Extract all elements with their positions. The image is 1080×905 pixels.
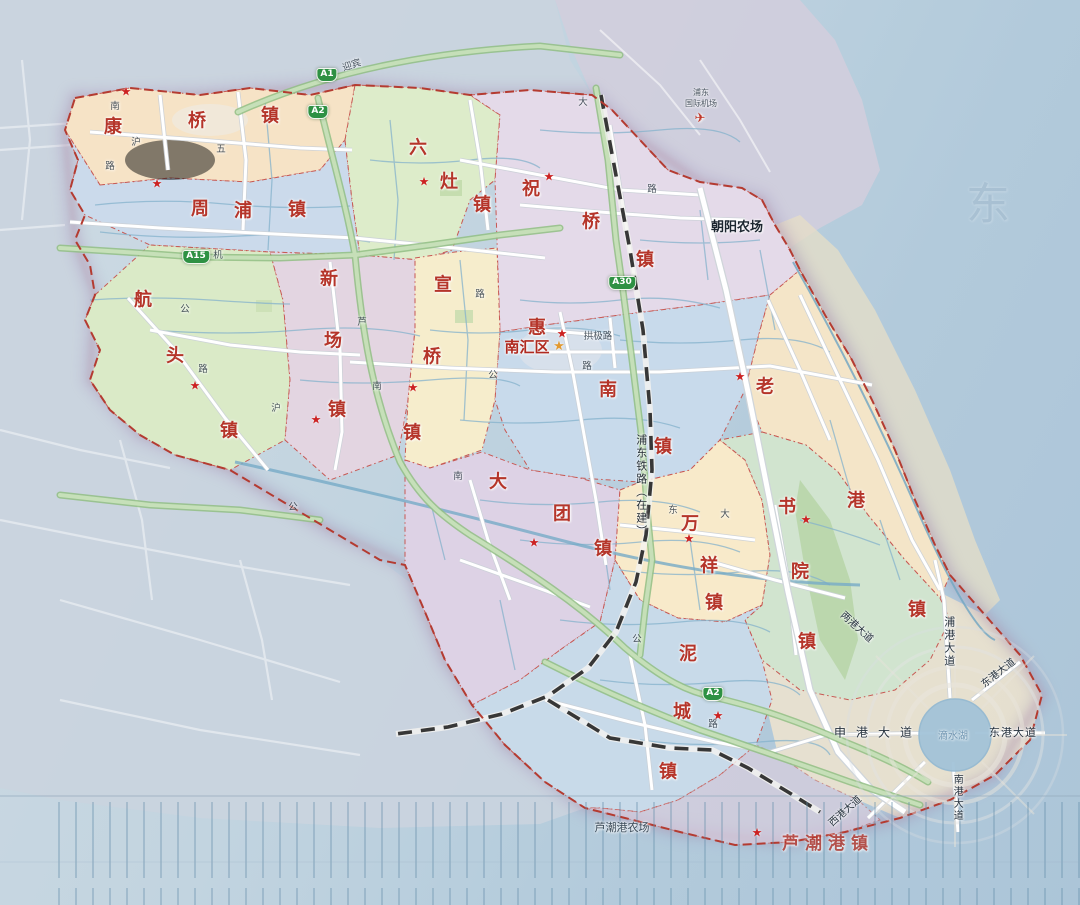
road-name-fragment: 沪	[131, 138, 141, 148]
pudong-airport-label: 国际机场	[685, 100, 717, 108]
town-seat-star: ★	[752, 827, 763, 840]
town-label-datuan: 镇	[594, 541, 612, 560]
town-label-hangtou: 航	[134, 292, 152, 311]
town-label-hangtou: 镇	[220, 423, 238, 442]
town-label-xinchang: 镇	[328, 402, 346, 421]
road-name-fragment: 路	[582, 362, 592, 372]
road-name-fragment: 南	[453, 472, 463, 482]
road-name-fragment: 公	[288, 503, 298, 513]
road-name-fragment: 公	[180, 305, 190, 315]
town-label-datuan: 大	[489, 474, 507, 493]
highway-shield-a2: A2	[307, 105, 328, 119]
road-name-fragment: 路	[647, 185, 657, 195]
lake-label: 滴水湖	[938, 732, 968, 743]
town-label-wanxiang: 祥	[700, 558, 718, 577]
district-capital-star: ★	[553, 340, 565, 354]
town-label-xuanqiao: 镇	[403, 425, 421, 444]
avenue-label: 西港大道	[828, 795, 865, 830]
town-label-datuan: 团	[553, 506, 571, 525]
town-label-huinan: 惠	[528, 320, 546, 339]
town-seat-star: ★	[190, 380, 201, 393]
town-seat-star: ★	[419, 176, 430, 189]
sea-ghost-label: 东	[966, 182, 1010, 228]
road-name-fragment: 南	[372, 382, 382, 392]
town-seat-star: ★	[544, 171, 555, 184]
road-name-fragment: 路	[105, 162, 115, 172]
town-label-zhuqiao: 镇	[636, 252, 654, 271]
town-label-xuanqiao: 桥	[423, 349, 441, 368]
town-label-liuzao: 六	[409, 140, 427, 159]
road-name-fragment: 南	[110, 102, 120, 112]
town-seat-star: ★	[735, 371, 746, 384]
town-label-wanxiang: 镇	[705, 595, 723, 614]
town-label-zhoupu: 浦	[234, 203, 252, 222]
labels-layer: 康桥镇周浦镇航头镇新场镇六灶镇宣桥镇祝桥镇惠南镇大团镇老港镇万祥镇书院镇泥城镇芦…	[0, 0, 1080, 905]
highway-shield-a2: A2	[702, 687, 723, 701]
town-label-nicheng: 镇	[659, 764, 677, 783]
avenue-label: 申港大道	[834, 727, 922, 740]
town-label-zhoupu: 周	[191, 201, 209, 220]
town-label-xinchang: 新	[320, 271, 338, 290]
road-name-fragment: 大	[720, 510, 730, 520]
town-label-shuyuan: 镇	[798, 634, 816, 653]
town-label-laogang: 镇	[908, 602, 926, 621]
town-label-huinan: 镇	[654, 439, 672, 458]
district-label: 南汇区	[504, 340, 549, 356]
road-name-fragment: 机	[213, 251, 223, 261]
highway-shield-a30: A30	[608, 276, 636, 290]
avenue-label: 南港大道	[951, 774, 962, 822]
town-seat-star: ★	[684, 533, 695, 546]
railway-label: 浦东铁路（在建）	[635, 434, 647, 538]
town-seat-star: ★	[713, 710, 724, 723]
town-label-liuzao: 灶	[440, 174, 458, 193]
town-label-laogang: 老	[756, 379, 774, 398]
road-name-fragment: 迎宾	[341, 58, 362, 73]
town-label-zhoupu: 镇	[288, 202, 306, 221]
town-label-kangqiao: 康	[104, 119, 122, 138]
town-label-laogang: 港	[847, 493, 865, 512]
avenue-label: 东港大道	[989, 727, 1037, 739]
airport-icon: ✈	[695, 112, 706, 126]
avenue-label: 浦港大道	[943, 616, 955, 668]
pudong-airport-label: 浦东	[693, 89, 709, 97]
town-label-zhuqiao: 祝	[522, 181, 540, 200]
avenue-label: 两港大道	[838, 611, 875, 646]
town-label-xinchang: 场	[324, 333, 342, 352]
town-seat-star: ★	[152, 178, 163, 191]
road-name-fragment: 拱极路	[584, 332, 613, 342]
town-label-luchaogang: 芦潮港镇	[782, 836, 874, 854]
town-label-shuyuan: 书	[778, 499, 796, 518]
road-name-fragment: 公	[632, 635, 642, 645]
chaoyang-farm-label: 朝阳农场	[711, 221, 763, 235]
town-seat-star: ★	[311, 414, 322, 427]
town-seat-star: ★	[121, 86, 132, 99]
town-seat-star: ★	[408, 382, 419, 395]
town-label-xuanqiao: 宣	[434, 277, 452, 296]
town-label-nicheng: 城	[673, 704, 691, 723]
town-label-kangqiao: 镇	[261, 108, 279, 127]
town-label-liuzao: 镇	[473, 197, 491, 216]
town-label-huinan: 南	[599, 382, 617, 401]
road-name-fragment: 路	[475, 290, 485, 300]
road-name-fragment: 五	[216, 145, 226, 155]
avenue-label: 东港大道	[980, 658, 1018, 691]
road-name-fragment: 路	[198, 365, 208, 375]
nanhui-district-map: 康桥镇周浦镇航头镇新场镇六灶镇宣桥镇祝桥镇惠南镇大团镇老港镇万祥镇书院镇泥城镇芦…	[0, 0, 1080, 905]
town-label-shuyuan: 院	[791, 564, 809, 583]
road-name-fragment: 公	[488, 371, 498, 381]
luchaogang-farm-label: 芦潮港农场	[595, 822, 650, 834]
town-seat-star: ★	[801, 514, 812, 527]
highway-shield-a1: A1	[316, 68, 337, 82]
town-seat-star: ★	[557, 328, 568, 341]
town-label-kangqiao: 桥	[188, 113, 206, 132]
town-label-zhuqiao: 桥	[582, 214, 600, 233]
town-label-hangtou: 头	[166, 348, 184, 367]
town-seat-star: ★	[529, 537, 540, 550]
road-name-fragment: 大	[578, 98, 588, 108]
highway-shield-a15: A15	[182, 250, 210, 264]
town-label-nicheng: 泥	[679, 646, 697, 665]
road-name-fragment: 沪	[271, 404, 281, 414]
road-name-fragment: 芦	[357, 318, 367, 328]
road-name-fragment: 东	[668, 506, 678, 516]
